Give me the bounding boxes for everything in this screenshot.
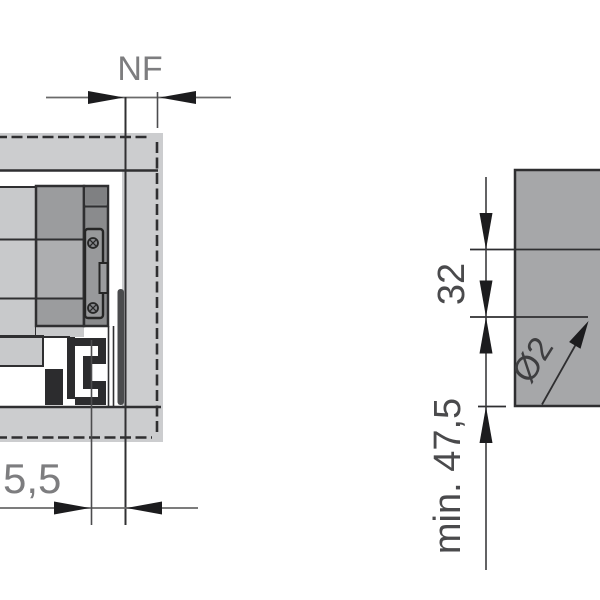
screw-top: [88, 238, 98, 248]
runner-body-mid-strip: [38, 240, 82, 298]
profile-outer-wall: [0, 187, 36, 336]
nf-dimension-label: NF: [111, 52, 169, 86]
technical-drawing-canvas: NF 5,5 32 min. 47,5 Ø2: [0, 0, 600, 600]
rear-fixing-pin: [118, 289, 125, 405]
drawing-linework: [0, 0, 600, 600]
min-height-dimension-label: min. 47,5: [429, 398, 467, 554]
adjustment-slider: [100, 263, 108, 293]
runner-rear-top-cell: [85, 188, 107, 205]
latch-mechanism: [45, 337, 106, 405]
row-spacing-dimension-label: 32: [433, 263, 471, 305]
vertical-dimension-arrows: [480, 213, 493, 443]
clip-meander: [67, 337, 106, 405]
front-gap-dimension-label: 5,5: [3, 458, 61, 500]
latch-block: [45, 369, 63, 405]
screw-bottom: [88, 303, 98, 313]
rear-column-extension-lines: [109, 326, 114, 406]
profile-lower-wall: [0, 336, 43, 366]
